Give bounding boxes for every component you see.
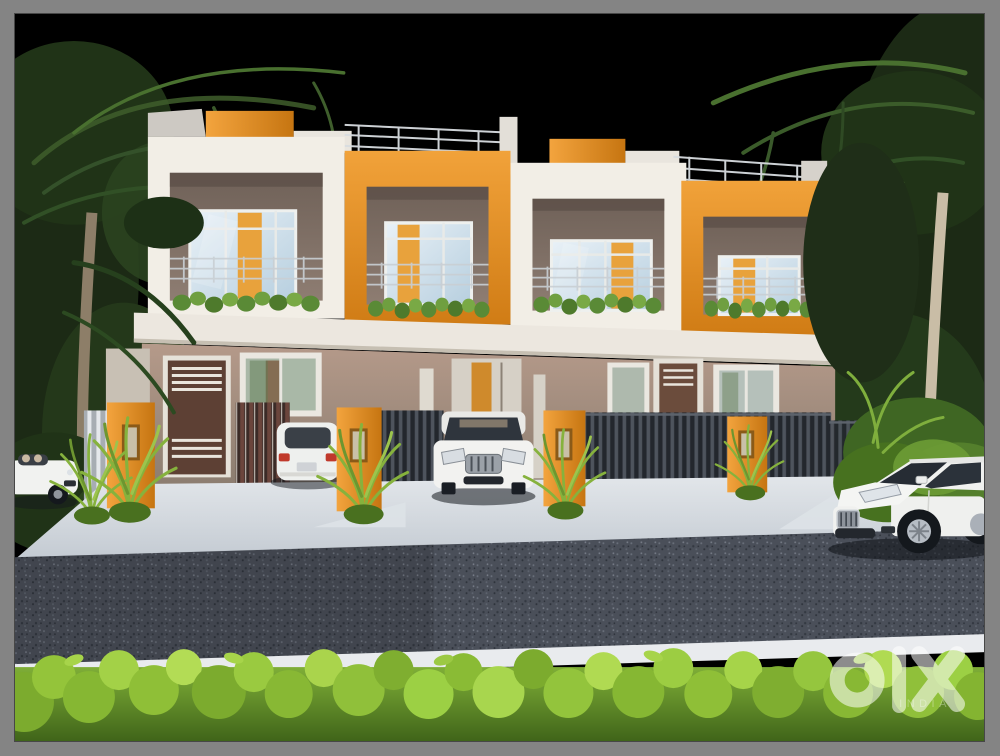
car-headrest (22, 454, 30, 462)
car-mirror (916, 476, 927, 483)
roof-corner-block (148, 109, 206, 137)
listing-photo: OLX INDIA OLX (14, 13, 985, 742)
car-bumper-intake (464, 476, 504, 484)
balcony-bay-3-white (510, 163, 686, 331)
car-fog-light (881, 526, 895, 533)
photo-frame: OLX INDIA OLX (0, 0, 1000, 756)
car-rear-window (285, 427, 331, 448)
entry-door-1 (163, 356, 231, 478)
watermark-country-label: INDIA (899, 698, 951, 710)
car-grille (64, 480, 76, 486)
roof-parapet-orange-a (206, 111, 294, 141)
car-headlight (67, 469, 73, 475)
car-interior (460, 419, 508, 427)
car-license-plate (297, 462, 317, 471)
car-wheel-rim (53, 490, 62, 499)
scene-render: OLX INDIA (14, 13, 985, 742)
car-headrest (34, 454, 42, 462)
car-sedan-front (432, 411, 536, 505)
orange-curtain (238, 213, 262, 299)
ground-window-2 (607, 363, 649, 421)
car-bumper-intake (835, 528, 875, 538)
road-shading (14, 544, 434, 666)
orange-curtain (398, 225, 420, 303)
car-taillight (279, 453, 290, 461)
car-bumper (280, 472, 336, 476)
car-hatchback-rear (271, 422, 345, 489)
car-body (14, 460, 78, 494)
roof-parapet-orange-b (549, 139, 625, 165)
car-wheel (442, 482, 456, 494)
balcony-bay-2-orange (345, 151, 511, 325)
car-wheel (511, 482, 525, 494)
car-taillight (326, 453, 337, 461)
